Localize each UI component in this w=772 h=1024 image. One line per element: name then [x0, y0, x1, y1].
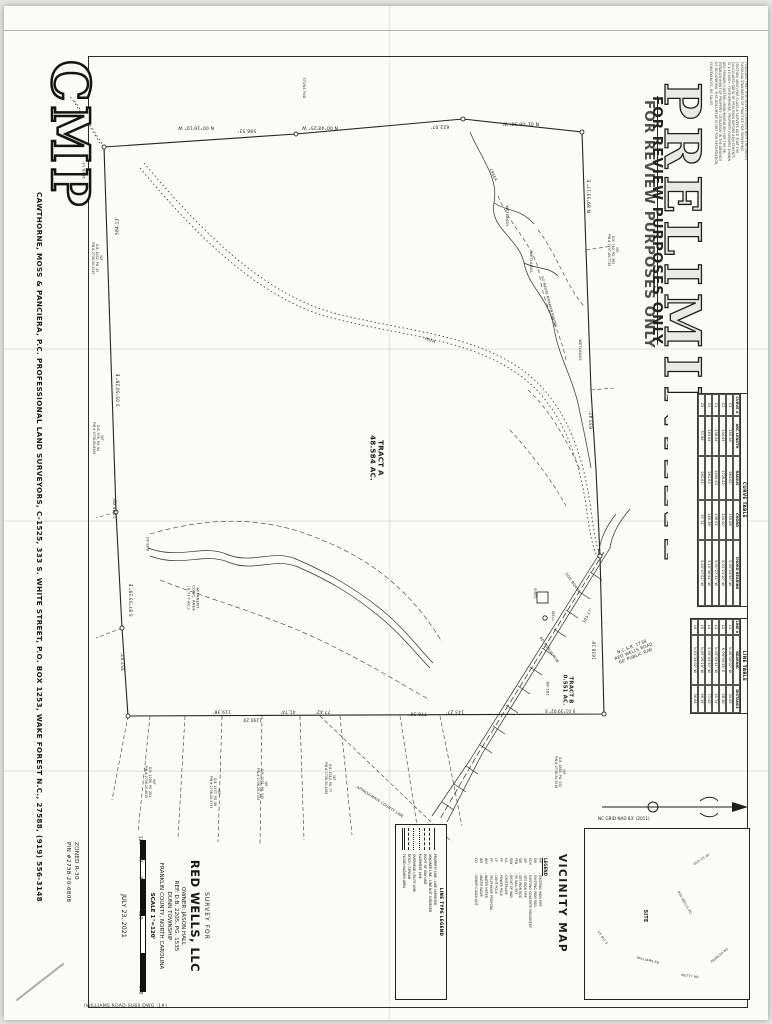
legend-item: LP- LIGHT POLE — [493, 858, 498, 990]
declaration-line: ESTABLISHMENT OF PROPERTY LITIGATION IN … — [718, 62, 722, 274]
legend-item: PKN- PK NAIL SET — [513, 858, 518, 990]
plat-label: WETLANDS — [578, 339, 582, 360]
line-sample — [413, 828, 414, 850]
legend-item: PP- POWER POLE — [498, 858, 503, 990]
plat-label: 584.13' — [115, 217, 120, 235]
line-type-item: RIGHT OF WAY LINE — [422, 828, 427, 996]
scale-bar: 120600120360 — [130, 840, 146, 992]
declaration-line: IS 1:10,000+. FURTHERMORE, PROPERTY CORN… — [726, 62, 730, 274]
declaration-line: I DECLARE THAT THIS SURVEY COMPLIES WITH… — [744, 62, 748, 274]
legend-item: WM- WATER METER — [483, 858, 488, 990]
line-type-items: PROPERTY LINE - LINE SURVEYED ADJOINER L… — [401, 828, 438, 996]
declaration-line: CALCULATED RATIO OF PRECISION BEFORE ADJ… — [731, 62, 735, 274]
title-block: SURVEY FOR RED WELLS, LLC OWNER: JASON H… — [92, 822, 210, 1010]
ref-line: REF: D.B. 2205, PG. 1535 — [173, 822, 179, 1010]
plat-label: TRACT A 48.584 AC. — [368, 435, 385, 481]
plat-label: N 00°48'25" W — [302, 124, 338, 129]
legend-item: TP- TELEPHONE PEDESTAL — [488, 858, 493, 990]
line-type-item: OVERHEAD UTILITY LINE — [411, 828, 416, 996]
plat-label: 845.62' — [146, 535, 150, 551]
legend-item: EIP- EXISTING IRON PIPE — [537, 858, 542, 990]
plat-label: 1658.11' — [82, 161, 86, 179]
plat-label: 1095.95' — [113, 498, 118, 519]
plat-label: 778.38' — [409, 710, 427, 715]
legend-item: CO- SEWER CLEAN-OUT — [474, 858, 479, 990]
table-row: C3138.04'1694.43'138.01'S 01°27'31" W — [712, 394, 719, 606]
table-row: L5N 05°29'19" W66.15' — [698, 619, 705, 713]
plat-label: 143.27' — [446, 708, 464, 713]
legend: LEGEND EIP- EXISTING IRON PIPE EIR- EXIS… — [454, 858, 548, 990]
legend-item: SIP- SET IRON PIPE — [522, 858, 527, 990]
declaration-line: CONVEYANCES, OR SALES. — [709, 62, 713, 274]
county-line: FRANKLIN COUNTY, NORTH CAROLINA — [158, 822, 164, 1010]
table-row: L4S 49°43'20" W77.42' — [705, 619, 712, 713]
table-row: C4163.04'261.63'160.38'S 16°36'44" W — [705, 394, 712, 606]
line-type-legend: LINE TYPE LEGEND PROPERTY LINE - LINE SU… — [395, 824, 447, 1000]
plat-label: N 01°06'38" W — [503, 120, 539, 125]
plat-label: APPARENT CONC. AREA (0.717 AC.) — [186, 585, 199, 611]
line-table: LINE TABLE LINE #BEARINGDISTANCE L1N 40°… — [672, 618, 748, 714]
line-sample — [419, 828, 420, 850]
adjoiner-label: N/F D.B. 2031, PG. 540 PIN # 2738-20-370… — [256, 768, 268, 801]
line-table-header: LINE #BEARINGDISTANCE — [733, 619, 740, 713]
scale-tick: 120 — [137, 911, 142, 920]
township-line: DUNN TOWNSHIP — [166, 822, 172, 1010]
survey-date: JULY 23, 2021 — [120, 822, 128, 1010]
line-type-item: DITCH / STREAM — [406, 828, 411, 996]
plat-label: 119.38' — [213, 708, 231, 713]
line-type-item: EASEMENT LINE — [417, 828, 422, 996]
pin-note: PIN #2738-20-6808 — [63, 842, 71, 962]
curve-table: CURVE TABLE CURVE #ARC LENGTHRADIUSCHORD… — [668, 393, 748, 607]
plat-label: S 01°39'02" E — [545, 708, 575, 713]
plat-label: WELL — [551, 611, 555, 621]
adjoiner-label: N/F D.B. 1457, PG. 88 PIN # 2738-20-1733 — [209, 776, 221, 809]
plat-label: S 87°55'29" E — [129, 583, 134, 616]
plat-label: WETLANDS — [505, 205, 509, 226]
legend-item: C/L- CENTERLINE — [503, 858, 508, 990]
line-table-rows: L1N 40°10'02" W34.05' L2N 09°59'33" E28.… — [691, 619, 733, 713]
cmp-logo: CMP — [38, 60, 100, 188]
table-row: L6N 01°39'02" W36.64' — [691, 619, 698, 713]
adjoiner-label: N/F D.B. 978, PG. 64 PIN # 2738-00-8149 — [92, 422, 104, 455]
vicinity-map — [584, 828, 750, 1000]
plat-label: N 89°53'17" E — [587, 179, 592, 213]
adjoiner-label: N/F D.B. 1286, PG. 201 PIN # 2738-20-081… — [144, 766, 156, 799]
legend-item: SIR- SET IRON ROD — [518, 858, 523, 990]
plat-label: 352.07' — [121, 653, 126, 671]
plat-label: 1638.16' — [593, 640, 598, 659]
line-type-legend-title: LINE TYPE LEGEND — [439, 828, 444, 996]
scale-ticks: 120600120360 — [134, 840, 140, 990]
vicinity-title: VICINITY MAP — [556, 854, 568, 953]
line-sample — [424, 828, 425, 850]
plat-label: 633.42' — [589, 411, 594, 429]
line-sample — [408, 828, 409, 850]
plat-label: SHED — [533, 588, 537, 598]
file-note: (WILLIAMS ROAD-SU60.DWG -1#) — [84, 1004, 167, 1009]
plat-label: N 00°16'10" W — [178, 124, 214, 129]
table-row: L1N 40°10'02" W34.05' — [726, 619, 733, 713]
review-note-2: FOR REVIEW PURPOSES ONLY — [642, 100, 660, 600]
declaration-line: ARE PRIMARY CONTROL MONUMENTATION FOR TH… — [722, 62, 726, 274]
scale-tick: 360 — [137, 986, 142, 995]
zoning-block: ZONED R-30 PIN #2738-20-6808 — [62, 842, 80, 962]
scanned-survey-plat: { "firm": { "logo": "CMP", "name_line": … — [0, 0, 772, 1024]
legend-items: EIP- EXISTING IRON PIPE EIR- EXISTING IR… — [474, 858, 542, 990]
zoning-note: ZONED R-30 — [72, 842, 80, 962]
declaration-line: OF OCCUPATION. THIS DOCUMENT IS NOT FOR … — [713, 62, 717, 274]
scale-tick: 120 — [137, 836, 142, 845]
legend-item: R/W- RIGHT OF WAY — [508, 858, 513, 990]
legend-item: ECM- EXISTING CONCRETE MONUMENT — [527, 858, 532, 990]
plat-label: 41.74' — [281, 708, 296, 713]
adjoiner-label: N/F D.B. 760, PG. 363 PIN # 2737-89-7739 — [607, 234, 619, 267]
scale-tick: 0 — [137, 877, 142, 880]
survey-for-label: SURVEY FOR — [203, 822, 210, 1010]
adjoiner-label: N/F D.B. 1042, PG. 15 PIN # 2738-10-2215 — [91, 242, 103, 275]
declaration-line: CAROLINA STANDARDS OF PRACTICE FOR SURVE… — [739, 62, 743, 274]
client-name: RED WELLS, LLC — [188, 822, 202, 1010]
vicinity-title-wrap: VICINITY MAP — [560, 854, 574, 978]
table-row: C557.84'261.63'57.72'S 40°47'02" W — [698, 394, 705, 606]
table-row: L3N 45°43'41" W41.74' — [712, 619, 719, 713]
declaration-line: (SECTION 1600) FOR CLASS A SURVEYS AND T… — [735, 62, 739, 274]
plat-label: 181.68' — [546, 680, 550, 696]
legend-title: LEGEND — [543, 858, 548, 990]
scale-tick: 60 — [137, 856, 142, 862]
adjoiner-label: N/F D.B. 1685, PG. 332 PIN # 2738-30-331… — [554, 756, 566, 789]
line-type-item: PROPERTY LINE - LINE SURVEYED — [432, 828, 437, 996]
table-row: L2N 09°59'33" E28.30' — [719, 619, 726, 713]
plat-label: 77.42' — [316, 708, 331, 713]
table-row: C2144.44'1726.42'144.40'S 03°21'10" W — [719, 394, 726, 606]
owner-line: OWNER: JASON HALL — [180, 822, 186, 1010]
table-row: C1155.18'963.62'155.08'S 05°53'56" W — [726, 394, 733, 606]
plat-label: 588.53' — [238, 127, 256, 132]
grid-note: NC GRID NAD 83' (2011) — [598, 816, 650, 821]
line-sample — [434, 828, 435, 850]
plat-label: TRACT B 0.551 AC. — [561, 675, 574, 706]
scale-label: SCALE 1"=120' — [149, 822, 155, 1010]
adjoiner-label: N/F D.B. 1910, PG. 77 PIN # 2738-30-1269 — [324, 762, 336, 795]
firm-logo-text: CMP — [39, 60, 100, 210]
north-arrow-head — [732, 802, 748, 812]
line-type-item: FLOOD HAZARD AREA — [401, 828, 406, 996]
line-sample — [429, 828, 430, 850]
plat-label: WETLANDS — [529, 251, 533, 272]
legend-item: WV- WATER VALVE — [478, 858, 483, 990]
plat-label: S 05°50'29" E — [116, 373, 121, 406]
vicinity-label: SITE — [641, 909, 647, 922]
line-sample — [402, 828, 406, 850]
curve-table-header: CURVE #ARC LENGTHRADIUSCHORDCHORD BEARIN… — [733, 394, 740, 606]
plat-label: 622.07' — [431, 123, 449, 128]
plat-label: 1299.29' — [242, 717, 261, 722]
firm-name: CAWTHORNE, MOSS & PANCIERA, P.C. PROFESS… — [36, 192, 52, 1007]
surveyor-declaration: I DECLARE THAT THIS SURVEY COMPLIES WITH… — [706, 62, 748, 274]
line-type-item: ADJOINER LINE - LINE NOT SURVEYED — [427, 828, 432, 996]
curve-table-rows: C1155.18'963.62'155.08'S 05°53'56" W C21… — [698, 394, 733, 606]
legend-item: EIR- EXISTING IRON ROD — [532, 858, 537, 990]
plat-label: STONE FND — [301, 77, 305, 98]
